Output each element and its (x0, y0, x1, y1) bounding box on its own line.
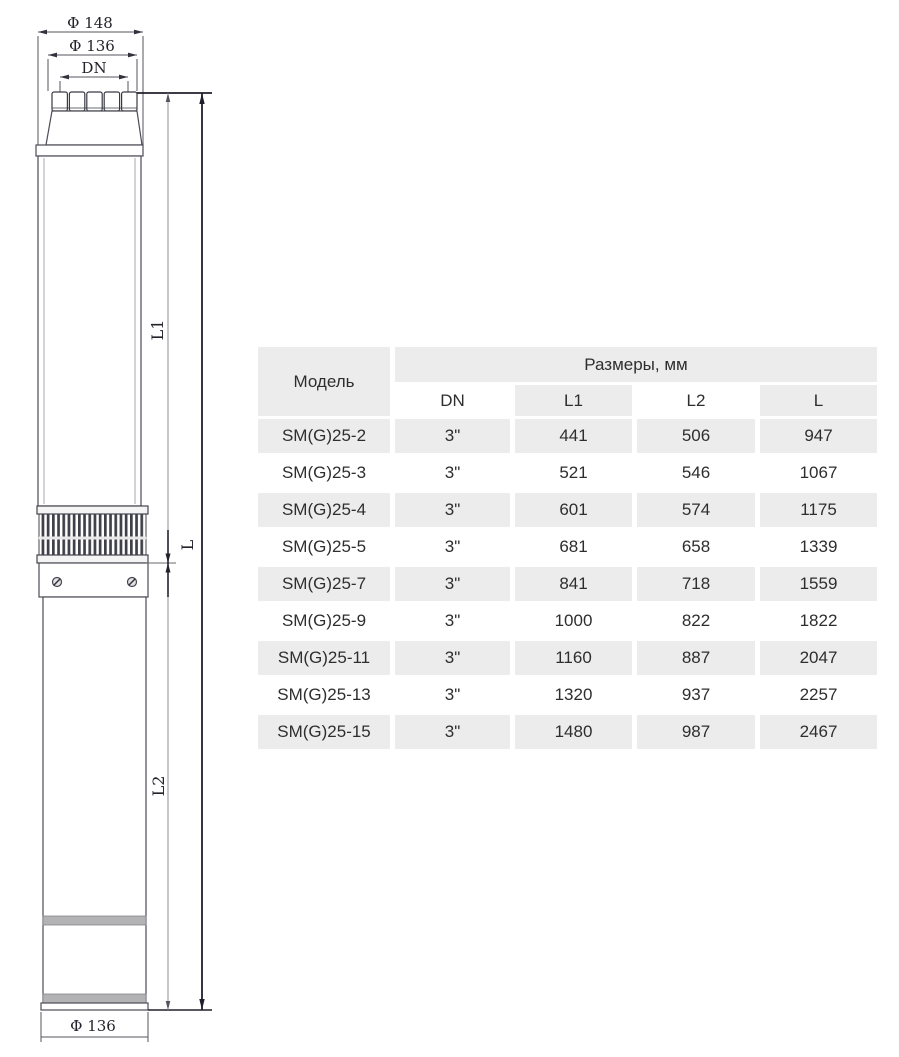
arrow-left-icon (38, 30, 47, 35)
dim-pump-length-label: L1 (148, 320, 167, 341)
model-cell: SM(G)25-13 (258, 678, 390, 712)
arrow-up-icon (199, 93, 204, 104)
dim-port-label: DN (81, 59, 106, 77)
motor-body (43, 597, 146, 1004)
l-cell: 1822 (760, 604, 877, 638)
arrow-left-icon (60, 75, 69, 80)
col-header-l: L (760, 385, 877, 416)
l-cell: 947 (760, 419, 877, 453)
dn-cell: 3" (395, 456, 510, 490)
l1-cell: 441 (515, 419, 632, 453)
motor-end-cap (41, 1003, 148, 1010)
model-cell: SM(G)25-3 (258, 456, 390, 490)
table-row: SM(G)25-2 3" 441 506 947 (258, 419, 877, 453)
sizes-group-header: Размеры, мм (395, 347, 877, 382)
arrow-left-icon (48, 53, 57, 58)
dn-cell: 3" (395, 530, 510, 564)
dn-cell: 3" (395, 641, 510, 675)
screw-icon (128, 578, 137, 587)
table-row: SM(G)25-13 3" 1320 937 2257 (258, 678, 877, 712)
l-cell: 1559 (760, 567, 877, 601)
motor-band (43, 994, 146, 1003)
l1-cell: 841 (515, 567, 632, 601)
l-cell: 1067 (760, 456, 877, 490)
table-row: SM(G)25-11 3" 1160 887 2047 (258, 641, 877, 675)
screw-icon (53, 578, 62, 587)
model-cell: SM(G)25-15 (258, 715, 390, 749)
table-row: SM(G)25-15 3" 1480 987 2467 (258, 715, 877, 749)
arrow-right-icon (128, 53, 137, 58)
model-cell: SM(G)25-4 (258, 493, 390, 527)
l1-cell: 1320 (515, 678, 632, 712)
l1-cell: 521 (515, 456, 632, 490)
dimensions-table: Модель Размеры, мм DN L1 L2 L SM(G)25-2 … (253, 344, 882, 752)
l1-cell: 681 (515, 530, 632, 564)
l-cell: 1175 (760, 493, 877, 527)
model-cell: SM(G)25-2 (258, 419, 390, 453)
arrow-right-icon (119, 75, 128, 80)
dim-outer-diameter-label: Φ 148 (67, 14, 113, 32)
pump-technical-drawing: Φ 148 Φ 136 DN (0, 0, 230, 1057)
l2-cell: 506 (637, 419, 755, 453)
l2-cell: 937 (637, 678, 755, 712)
dn-cell: 3" (395, 715, 510, 749)
model-cell: SM(G)25-7 (258, 567, 390, 601)
pump-head-flange (36, 145, 143, 156)
l1-cell: 1480 (515, 715, 632, 749)
l-cell: 2257 (760, 678, 877, 712)
l1-cell: 1160 (515, 641, 632, 675)
l2-cell: 574 (637, 493, 755, 527)
arrow-down-icon (199, 999, 204, 1010)
table-row: SM(G)25-9 3" 1000 822 1822 (258, 604, 877, 638)
col-header-l1: L1 (515, 385, 632, 416)
table-row: SM(G)25-4 3" 601 574 1175 (258, 493, 877, 527)
table-row: SM(G)25-7 3" 841 718 1559 (258, 567, 877, 601)
motor-band (43, 916, 146, 925)
model-cell: SM(G)25-11 (258, 641, 390, 675)
dim-bottom-diameter-label: Φ 136 (70, 1017, 116, 1035)
pump-head-taper (46, 111, 142, 145)
l2-cell: 718 (637, 567, 755, 601)
dn-cell: 3" (395, 678, 510, 712)
model-column-header: Модель (258, 347, 390, 416)
col-header-l2: L2 (637, 385, 755, 416)
dim-total-length-label: L (178, 539, 197, 550)
model-cell: SM(G)25-5 (258, 530, 390, 564)
dim-motor-length-label: L2 (149, 776, 168, 797)
l2-cell: 887 (637, 641, 755, 675)
page: Φ 148 Φ 136 DN (0, 0, 899, 1057)
col-header-dn: DN (395, 385, 510, 416)
l2-cell: 658 (637, 530, 755, 564)
l2-cell: 546 (637, 456, 755, 490)
dn-cell: 3" (395, 567, 510, 601)
dn-cell: 3" (395, 493, 510, 527)
l-cell: 1339 (760, 530, 877, 564)
table-row: SM(G)25-3 3" 521 546 1067 (258, 456, 877, 490)
dim-cap-diameter-label: Φ 136 (69, 37, 115, 55)
table-row: SM(G)25-5 3" 681 658 1339 (258, 530, 877, 564)
l1-cell: 601 (515, 493, 632, 527)
discharge-thread (52, 92, 137, 111)
suction-strainer (37, 506, 148, 563)
l2-cell: 987 (637, 715, 755, 749)
model-cell: SM(G)25-9 (258, 604, 390, 638)
arrow-up-icon (166, 93, 171, 102)
pump-body (38, 156, 141, 506)
l-cell: 2047 (760, 641, 877, 675)
l2-cell: 822 (637, 604, 755, 638)
arrow-right-icon (134, 30, 143, 35)
dn-cell: 3" (395, 604, 510, 638)
l-cell: 2467 (760, 715, 877, 749)
arrow-down-icon (166, 1001, 171, 1010)
dn-cell: 3" (395, 419, 510, 453)
l1-cell: 1000 (515, 604, 632, 638)
dim-port (60, 77, 128, 92)
